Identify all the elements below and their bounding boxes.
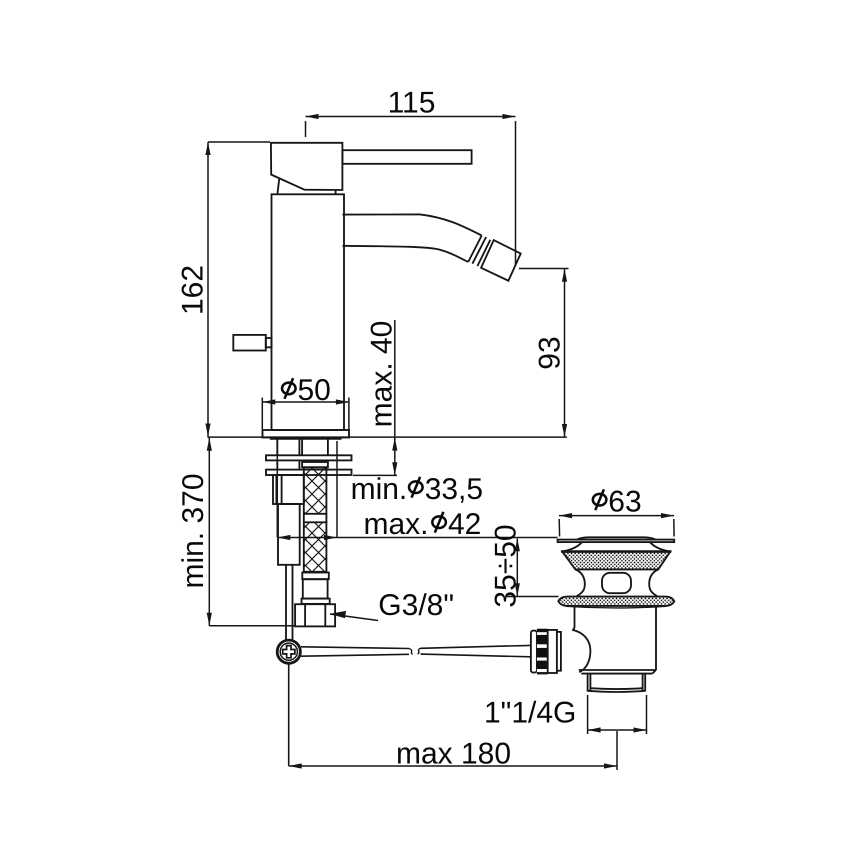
svg-text:G3/8": G3/8" bbox=[378, 589, 454, 622]
svg-text:max. 40: max. 40 bbox=[366, 321, 399, 428]
svg-text:35÷50: 35÷50 bbox=[489, 524, 522, 607]
svg-text:63: 63 bbox=[608, 486, 641, 519]
svg-text:max.: max. bbox=[364, 508, 429, 541]
svg-text:50: 50 bbox=[298, 374, 331, 407]
svg-text:33,5: 33,5 bbox=[425, 473, 483, 506]
svg-text:max 180: max 180 bbox=[396, 738, 511, 771]
svg-text:115: 115 bbox=[388, 87, 436, 120]
svg-text:93: 93 bbox=[534, 336, 567, 369]
svg-text:42: 42 bbox=[448, 508, 481, 541]
svg-text:1"1/4G: 1"1/4G bbox=[484, 697, 576, 730]
svg-text:min. 370: min. 370 bbox=[177, 473, 210, 588]
svg-text:162: 162 bbox=[177, 265, 210, 315]
svg-text:min.: min. bbox=[351, 473, 408, 506]
